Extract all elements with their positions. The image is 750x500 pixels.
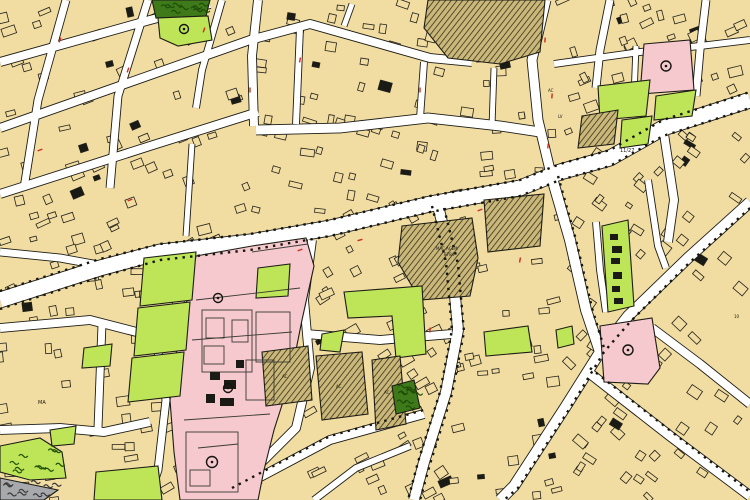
historic-block: [578, 110, 618, 148]
map-label: MA: [38, 400, 46, 406]
map-label: AC: [336, 384, 342, 389]
map-label: MAC ACEM: [436, 246, 458, 251]
park: [484, 326, 532, 356]
historic-block: [484, 194, 544, 252]
historic-block: [316, 352, 368, 420]
park: [320, 330, 344, 352]
map-label: 11/27: [620, 148, 634, 154]
park: [128, 352, 184, 402]
park: [556, 326, 574, 348]
map-label: AC: [282, 374, 288, 379]
map-label: 8784: [444, 252, 455, 257]
park: [620, 116, 652, 148]
monument-pink: [600, 318, 660, 384]
park: [50, 426, 76, 446]
park: [82, 344, 112, 368]
map-label: AC: [384, 390, 390, 395]
park: [94, 466, 162, 500]
cadastral-map-canvas[interactable]: MAC ACEM878411/27ACLVACACACMA10: [0, 0, 750, 500]
map-label: 10: [734, 314, 740, 319]
map-viewport: MAC ACEM878411/27ACLVACACACMA10: [0, 0, 750, 500]
map-label: LV: [558, 114, 563, 119]
park: [134, 302, 190, 356]
map-label: AC: [548, 88, 554, 93]
